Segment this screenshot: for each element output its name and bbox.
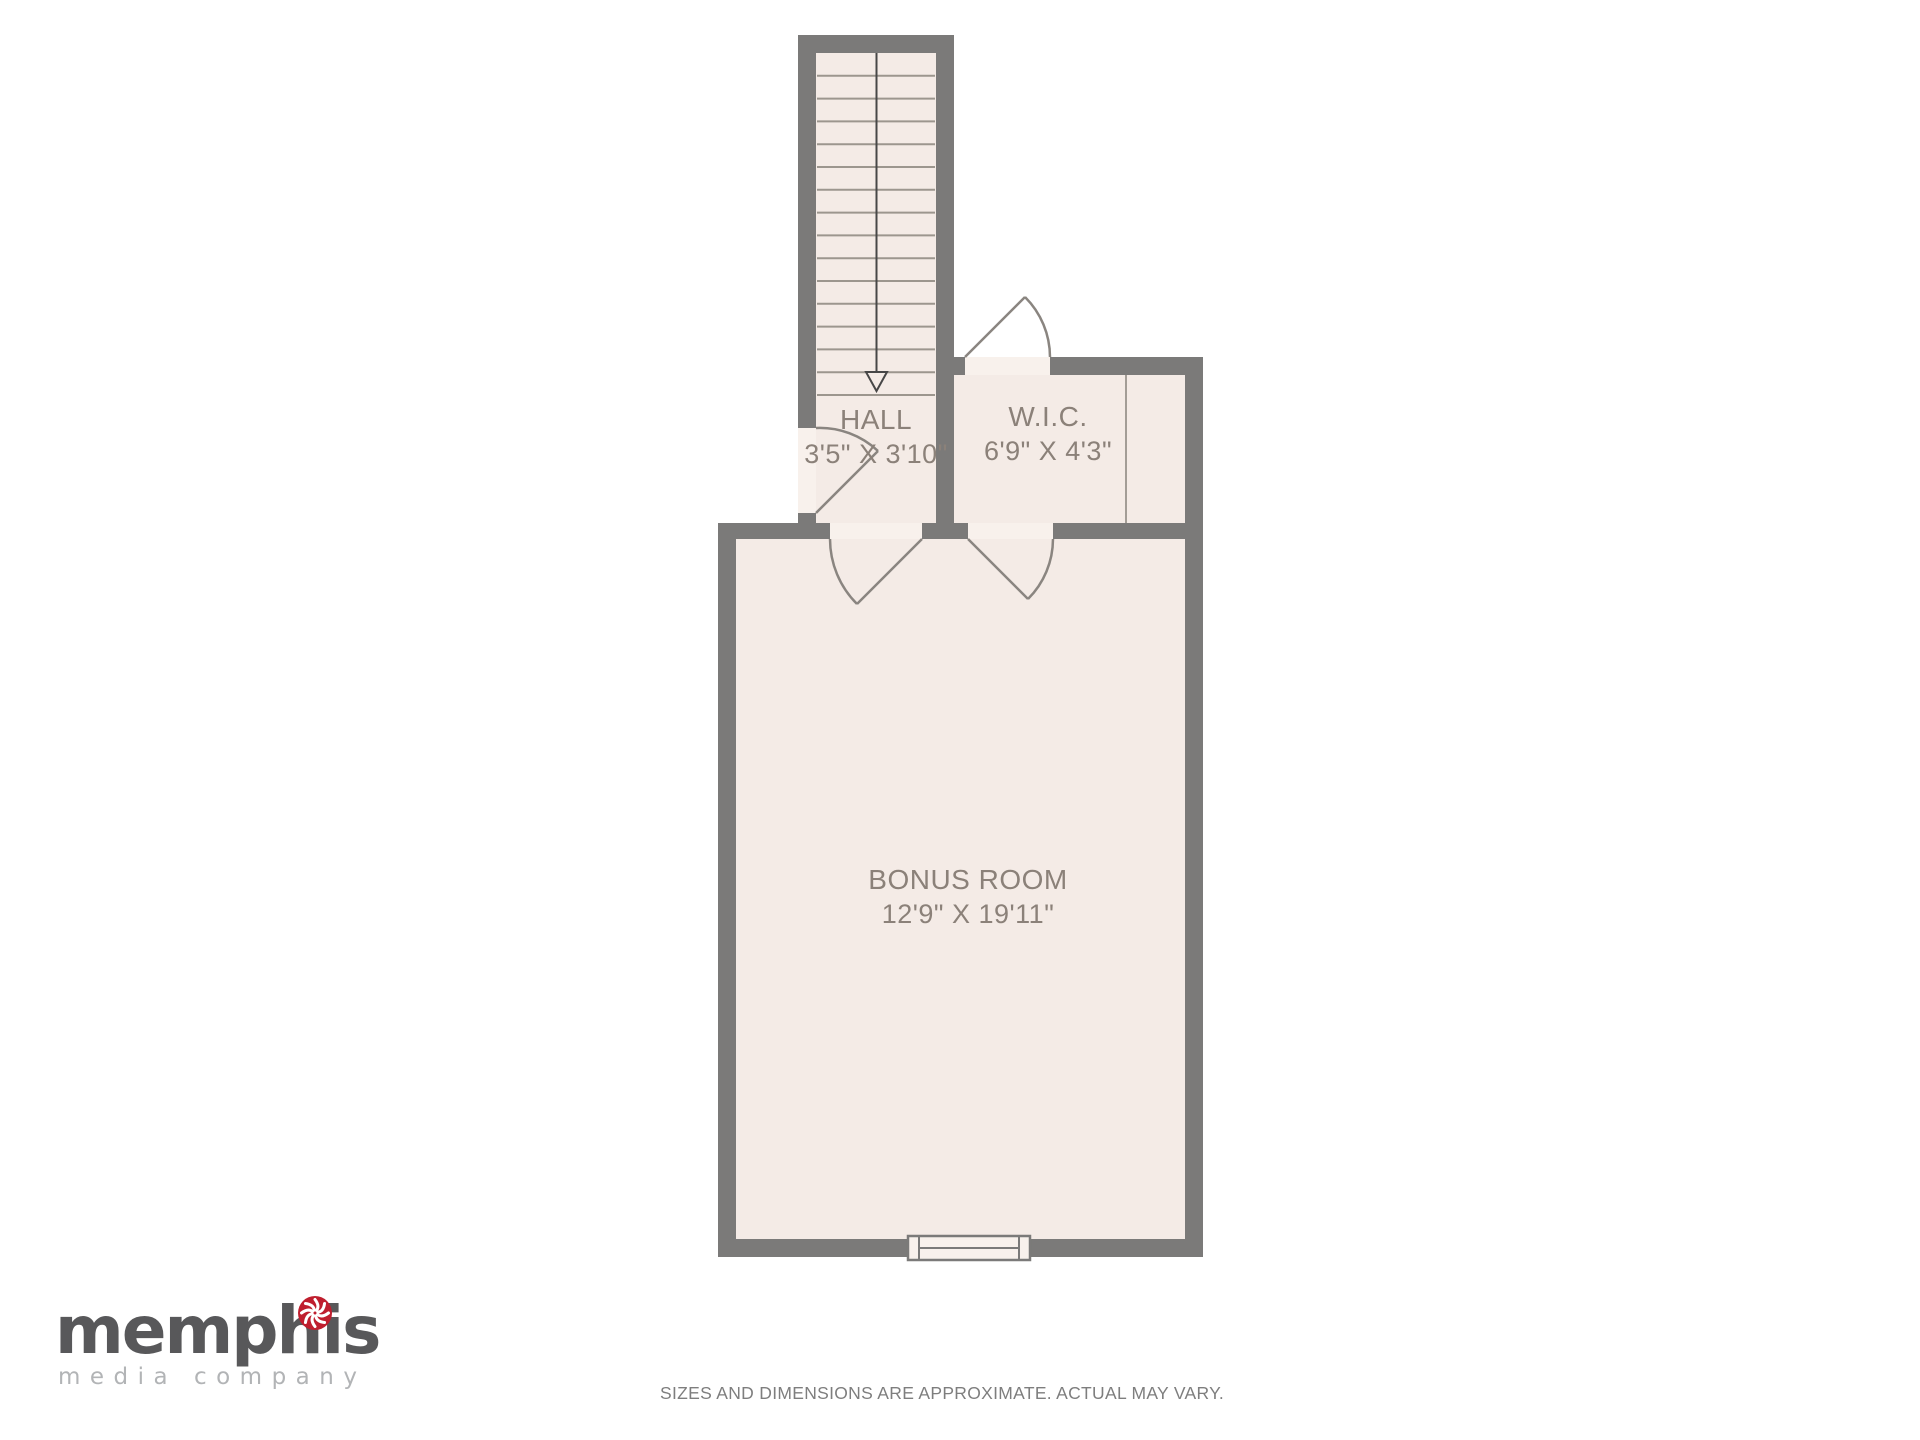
wall-wic-top-left-stub — [954, 357, 965, 375]
wall-bonus-top-right — [1053, 523, 1203, 539]
wic-door-leaf — [965, 297, 1025, 357]
threshold-wic-to-bonus — [968, 523, 1053, 539]
disclaimer-text: SIZES AND DIMENSIONS ARE APPROXIMATE. AC… — [660, 1383, 1224, 1404]
room-label-bonus-room: BONUS ROOM 12'9" X 19'11" — [868, 863, 1067, 931]
wall-stair-left-stub — [798, 513, 816, 523]
floor-plan — [0, 0, 1920, 1440]
bonus-room-name: BONUS ROOM — [868, 863, 1067, 897]
room-label-hall: HALL 3'5" X 3'10" — [804, 403, 948, 471]
wall-bonus-right — [1185, 539, 1203, 1257]
wall-wic-right — [1185, 357, 1203, 523]
wic-door-arc — [1025, 297, 1050, 357]
hall-name: HALL — [804, 403, 948, 437]
hall-dimensions: 3'5" X 3'10" — [804, 437, 948, 471]
threshold-wic-door — [965, 357, 1050, 375]
logo-tagline-text: media company — [58, 1364, 366, 1390]
wall-stair-left-upper — [798, 53, 816, 428]
wall-stair-top — [798, 35, 954, 53]
bonus-room-dimensions: 12'9" X 19'11" — [868, 897, 1067, 931]
threshold-hall-to-bonus — [830, 523, 922, 539]
wic-name: W.I.C. — [984, 400, 1112, 434]
wic-dimensions: 6'9" X 4'3" — [984, 434, 1112, 468]
wall-bonus-top-left — [718, 523, 830, 539]
bonus-room-window — [908, 1236, 1030, 1260]
wall-wic-top-right — [1050, 357, 1203, 375]
wall-bonus-left — [718, 539, 736, 1257]
aperture-icon — [296, 1294, 334, 1332]
wic-door — [965, 297, 1050, 357]
wall-bonus-top-middle — [922, 523, 968, 539]
room-label-wic: W.I.C. 6'9" X 4'3" — [984, 400, 1112, 468]
page: HALL 3'5" X 3'10" W.I.C. 6'9" X 4'3" BON… — [0, 0, 1920, 1440]
logo: memphis media company — [55, 1295, 385, 1405]
